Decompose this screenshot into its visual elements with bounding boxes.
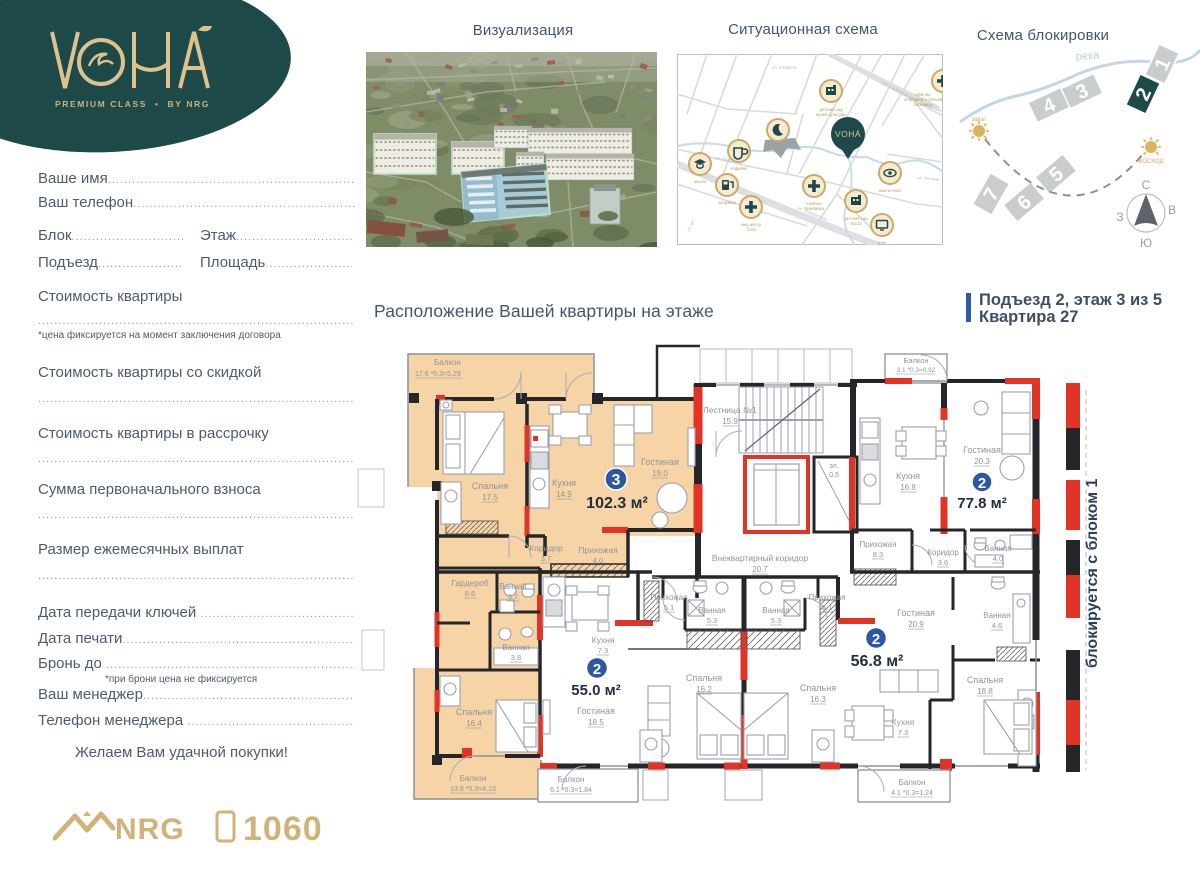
svg-text:VOHÁ: VOHÁ — [835, 129, 861, 139]
svg-text:Кухня: Кухня — [892, 717, 915, 727]
svg-text:7.3: 7.3 — [598, 646, 608, 655]
svg-text:19.0: 19.0 — [652, 469, 668, 478]
svg-text:Балкон: Балкон — [558, 775, 585, 784]
svg-text:Ю: Ю — [1140, 236, 1152, 250]
svg-text:20.3: 20.3 — [974, 457, 990, 466]
svg-text:3.1 *0.3=0.92: 3.1 *0.3=0.92 — [897, 367, 936, 374]
svg-text:0.5: 0.5 — [829, 472, 839, 479]
svg-text:3.7: 3.7 — [508, 592, 518, 601]
svg-text:20.9: 20.9 — [908, 620, 924, 629]
svg-text:З: З — [1116, 210, 1123, 224]
svg-text:14.9: 14.9 — [556, 490, 572, 499]
svg-text:Гостиная: Гостиная — [577, 706, 615, 716]
svg-text:56.8 м²: 56.8 м² — [851, 653, 904, 670]
svg-text:Спальня: Спальня — [472, 481, 508, 491]
svg-text:3.8: 3.8 — [511, 653, 521, 662]
svg-text:мечеть: мечеть — [771, 145, 785, 150]
svg-text:Спальня: Спальня — [686, 673, 722, 683]
svg-text:2: 2 — [978, 475, 986, 492]
svg-text:8.6: 8.6 — [465, 589, 475, 598]
svg-text:ВОСХОД: ВОСХОД — [1139, 159, 1164, 165]
svg-text:17.6 *0.3=5.29: 17.6 *0.3=5.29 — [415, 371, 461, 378]
svg-text:ул. 8 Марта: ул. 8 Марта — [772, 65, 797, 70]
svg-text:эл.: эл. — [829, 463, 839, 470]
svg-text:школа №12: школа №12 — [879, 188, 902, 193]
svg-text:Ванная: Ванная — [984, 544, 1011, 553]
svg-text:Спальня: Спальня — [456, 707, 492, 717]
svg-text:77.8 м²: 77.8 м² — [957, 495, 1006, 512]
svg-text:В: В — [1168, 203, 1176, 217]
svg-text:Ванная: Ванная — [983, 611, 1010, 620]
svg-text:5.3: 5.3 — [771, 616, 781, 625]
svg-text:2: 2 — [872, 631, 880, 648]
svg-text:18.8: 18.8 — [977, 687, 993, 696]
svg-text:Коридор: Коридор — [529, 543, 563, 553]
svg-text:4.0: 4.0 — [993, 554, 1003, 563]
svg-text:16.3: 16.3 — [810, 695, 826, 704]
svg-text:15.9: 15.9 — [722, 417, 738, 426]
svg-text:Ванная: Ванная — [698, 606, 725, 615]
svg-text:5.1: 5.1 — [822, 603, 832, 612]
svg-text:Гостиная: Гостиная — [897, 608, 935, 618]
svg-text:18.5: 18.5 — [588, 718, 604, 727]
svg-text:5.3: 5.3 — [707, 616, 717, 625]
svg-text:школа: школа — [694, 179, 707, 184]
svg-text:NRG: NRG — [115, 813, 185, 846]
svg-text:3.7: 3.7 — [541, 554, 551, 563]
svg-text:Гардероб: Гардероб — [451, 578, 489, 588]
svg-text:Прихожая: Прихожая — [859, 540, 896, 549]
svg-text:1060: 1060 — [243, 810, 323, 846]
svg-text:102.3 м²: 102.3 м² — [586, 495, 648, 512]
svg-text:Узакбаева: Узакбаева — [804, 206, 825, 211]
svg-text:7.3: 7.3 — [898, 728, 908, 737]
svg-text:Балкон: Балкон — [460, 774, 487, 783]
svg-text:Лестница №1: Лестница №1 — [703, 405, 757, 415]
svg-text:4.1 *0.3=1.24: 4.1 *0.3=1.24 — [891, 790, 933, 797]
svg-text:заправка: заправка — [718, 200, 736, 205]
svg-text:3.6: 3.6 — [938, 558, 948, 567]
svg-text:Балкон: Балкон — [434, 358, 461, 367]
svg-text:8.3: 8.3 — [873, 550, 883, 559]
svg-text:17.5: 17.5 — [482, 493, 498, 502]
svg-text:Прихожая: Прихожая — [578, 545, 618, 555]
svg-text:Балкон: Балкон — [899, 778, 926, 787]
svg-text:Балкон: Балкон — [903, 356, 928, 365]
svg-text:музей культуры: музей культуры — [816, 112, 846, 117]
svg-text:Кухня: Кухня — [896, 471, 920, 481]
svg-text:Ванная: Ванная — [499, 582, 526, 591]
svg-text:4.6: 4.6 — [992, 621, 1002, 630]
svg-text:Гостиная: Гостиная — [963, 445, 1001, 455]
svg-text:3: 3 — [612, 472, 621, 489]
svg-text:Ванная: Ванная — [502, 643, 529, 652]
svg-text:Спальня: Спальня — [967, 675, 1003, 685]
svg-text:Внеквартирный коридор: Внеквартирный коридор — [712, 553, 808, 563]
svg-text:С: С — [1142, 178, 1151, 192]
svg-text:16.2: 16.2 — [696, 685, 712, 694]
svg-text:№132: №132 — [850, 221, 862, 226]
svg-text:Гостиная: Гостиная — [641, 457, 679, 467]
svg-text:Сити: Сити — [746, 227, 756, 232]
svg-text:16.8: 16.8 — [900, 483, 916, 492]
svg-text:кофейня: кофейня — [731, 166, 748, 171]
svg-text:Прихожая: Прихожая — [808, 593, 845, 602]
svg-text:13.8 *0.3=4.13: 13.8 *0.3=4.13 — [450, 786, 496, 793]
svg-text:Кухня: Кухня — [552, 478, 576, 488]
svg-text:16.4: 16.4 — [466, 719, 482, 728]
svg-text:2: 2 — [593, 661, 601, 678]
svg-text:Прихожая: Прихожая — [650, 593, 687, 602]
svg-text:Кухня: Кухня — [592, 635, 615, 645]
svg-text:Спальня: Спальня — [800, 683, 836, 693]
svg-text:5.1: 5.1 — [664, 603, 674, 612]
svg-text:Ванная: Ванная — [762, 606, 789, 615]
svg-text:4.0: 4.0 — [593, 556, 603, 565]
svg-text:река: река — [1075, 49, 1100, 63]
svg-text:55.0 м²: 55.0 м² — [571, 682, 620, 699]
svg-text:блокируется с блоком 1: блокируется с блоком 1 — [1084, 479, 1101, 668]
svg-text:кино: кино — [878, 240, 887, 245]
svg-text:20.7: 20.7 — [752, 565, 768, 574]
svg-text:Коридор: Коридор — [927, 548, 959, 557]
svg-text:6.1 *0.3=1.84: 6.1 *0.3=1.84 — [550, 787, 592, 794]
